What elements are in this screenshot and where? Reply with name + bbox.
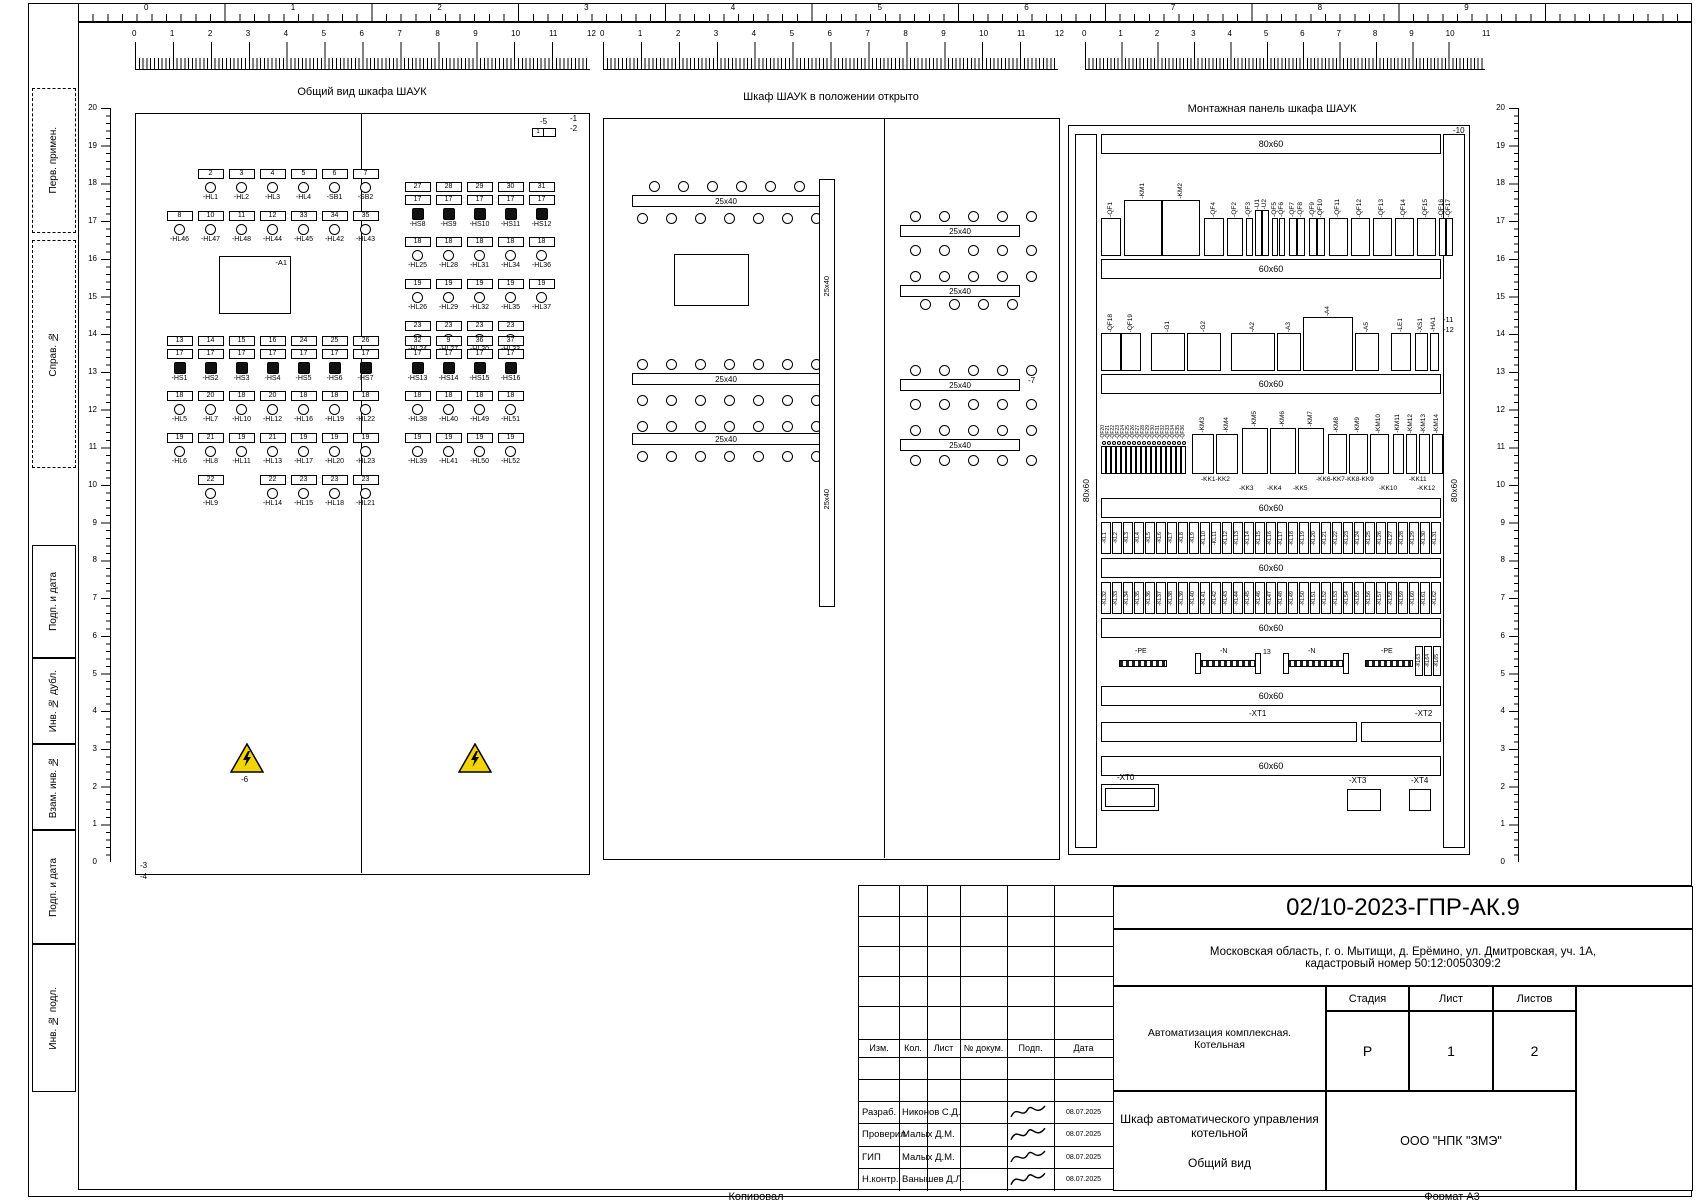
title-block: 02/10-2023-ГПР-АК.9 Московская область, … xyxy=(858,885,1692,1190)
ref-box: 27 xyxy=(405,182,431,192)
ref-slot: 16 xyxy=(257,336,288,349)
component-qf13: -QF13 xyxy=(1373,199,1392,256)
button-icon xyxy=(298,362,310,374)
duct-size-label: 80x60 xyxy=(1450,479,1459,502)
component-body xyxy=(1181,446,1186,474)
sign-date: 08.07.2025 xyxy=(1054,1168,1113,1191)
ref-box: 19 xyxy=(353,433,379,443)
component-label: -XS1 xyxy=(1418,318,1425,332)
component-label: -QF4 xyxy=(1211,202,1218,217)
indicator-lamp: -SB2 xyxy=(350,182,381,211)
indicator-lamp: -HL21 xyxy=(350,488,381,517)
grid-line xyxy=(859,916,1113,917)
mounting-hole xyxy=(978,299,989,310)
terminal: -KL41 xyxy=(1200,582,1210,614)
terminal-label: -KL34 xyxy=(1125,591,1131,606)
terminal-label: -KL24 xyxy=(1356,531,1362,546)
table-header: Лист xyxy=(927,1039,960,1057)
relay-label: -KK6-KK7-KK8-KK9 xyxy=(1316,476,1374,483)
component-qf10: -QF10 xyxy=(1317,199,1325,256)
lamp-icon xyxy=(505,404,516,415)
ref-slot: 17 xyxy=(195,349,226,362)
margin-label-box: Подп. и дата xyxy=(32,830,76,944)
terminal: -KL65 xyxy=(1433,646,1441,676)
drawing-name-cell: Шкаф автоматического управления котельно… xyxy=(1113,1091,1326,1191)
pe-busbar xyxy=(1365,660,1413,667)
mounting-hole xyxy=(678,181,689,192)
terminal-label: -KL35 xyxy=(1136,591,1142,606)
terminal: -KL35 xyxy=(1134,582,1144,614)
push-button: -HS1 xyxy=(164,362,195,391)
lamp-label: -HL20 xyxy=(325,457,344,466)
terminal-screw-icon xyxy=(1177,441,1181,445)
ref-box: 17 xyxy=(467,349,493,359)
terminal-label: -KL60 xyxy=(1411,591,1417,606)
n-busbar xyxy=(1287,660,1345,667)
indicator-lamp: -HL13 xyxy=(257,446,288,475)
ruler-number: 9 xyxy=(941,30,945,38)
component-body xyxy=(1297,218,1305,256)
terminal: -KL25 xyxy=(1365,522,1375,554)
ref-slot: 28 xyxy=(433,182,464,195)
ruler-number: 16 xyxy=(1496,255,1505,263)
empty-slot xyxy=(526,321,557,334)
terminal: -KL49 xyxy=(1288,582,1298,614)
ref-box: 18 xyxy=(405,237,431,247)
ref-box: 17 xyxy=(229,349,255,359)
mounting-hole xyxy=(910,271,921,282)
ref-slot: 23 xyxy=(350,475,381,488)
lamp-icon xyxy=(443,404,454,415)
ruler-number: 12 xyxy=(88,406,97,414)
terminal: -KL51 xyxy=(1310,582,1320,614)
cable-duct: 25x40 xyxy=(900,285,1020,297)
ruler-number: 11 xyxy=(1497,443,1505,451)
ruler-number: 4 xyxy=(1501,707,1505,715)
ref-box: 23 xyxy=(436,321,462,331)
lamp-column: 6-SB134-HL42 xyxy=(319,169,350,253)
lamp-icon xyxy=(298,488,309,499)
left-vertical-ruler: 20191817161514131211109876543210 xyxy=(84,108,111,862)
mounting-hole xyxy=(724,395,735,406)
mounting-hole xyxy=(782,451,793,462)
lamp-label: -SB1 xyxy=(327,193,343,202)
terminal: -KL61 xyxy=(1420,582,1430,614)
ref-box: 11 xyxy=(229,211,255,221)
button-label: -HS11 xyxy=(501,220,520,229)
component-km11: -KM11 xyxy=(1393,414,1404,474)
terminal-label: -KL37 xyxy=(1158,591,1164,606)
mounting-hole xyxy=(910,399,921,410)
terminal: -KL33 xyxy=(1112,582,1122,614)
ruler-number: 0 xyxy=(1501,858,1505,866)
ref-slot: 23 xyxy=(464,321,495,334)
terminal-label: -KL57 xyxy=(1378,591,1384,606)
component-label: -KM11 xyxy=(1395,414,1402,433)
terminal-label: -KL62 xyxy=(1433,591,1439,606)
ref-slot: 18 xyxy=(464,237,495,250)
signer-role: Проверил xyxy=(859,1123,899,1146)
lamp-label: -HL46 xyxy=(170,235,189,244)
ref-slot: 9 xyxy=(433,336,464,349)
terminal-label: -KL48 xyxy=(1279,591,1285,606)
terminal-label: -KL52 xyxy=(1323,591,1329,606)
busbar-label: -PE xyxy=(1381,648,1393,656)
ruler-number: 8 xyxy=(435,30,439,38)
ref-box: 17 xyxy=(529,195,555,205)
component-body xyxy=(1309,218,1317,256)
lamp-label: -HL38 xyxy=(408,415,427,424)
button-icon xyxy=(412,208,424,220)
terminal-label: -KL36 xyxy=(1147,591,1153,606)
ref-slot: 17 xyxy=(433,349,464,362)
ref-slot: 17 xyxy=(288,349,319,362)
component-km5: -KM5 xyxy=(1242,411,1268,474)
callout-13: 13 xyxy=(1263,649,1271,657)
component-body xyxy=(1227,218,1243,256)
lamp-icon xyxy=(474,404,485,415)
ref-slot: 18 xyxy=(319,391,350,404)
stage-value: Р xyxy=(1326,1011,1409,1091)
empty-slot xyxy=(164,475,195,488)
ref-box: 18 xyxy=(529,237,555,247)
button-label: -HS3 xyxy=(234,374,250,383)
lamp-icon xyxy=(412,292,423,303)
ref-slot: 36 xyxy=(464,336,495,349)
terminal-label: -KL12 xyxy=(1224,531,1230,546)
terminal-label: -KL64 xyxy=(1426,654,1431,667)
mounting-hole xyxy=(753,359,764,370)
ruler-number: 2 xyxy=(208,30,212,38)
component-label: -A3 xyxy=(1286,322,1293,332)
cable-duct: 60x60 xyxy=(1101,558,1441,578)
right-vertical-ruler: 20191817161514131211109876543210 xyxy=(1492,108,1519,862)
indicator-lamp: -HL10 xyxy=(226,404,257,433)
xt1-label: -XT1 xyxy=(1249,710,1266,719)
lamp-icon xyxy=(236,182,247,193)
ref-box: 17 xyxy=(260,349,286,359)
ruler-number: 2 xyxy=(1155,30,1159,38)
component-body xyxy=(1204,218,1224,256)
terminal: -KL39 xyxy=(1178,582,1188,614)
lamp-label: -HL3 xyxy=(265,193,280,202)
ruler-ticks xyxy=(1085,42,1485,70)
ruler-number: 6 xyxy=(1300,30,1304,38)
ruler-number: 1 xyxy=(1118,30,1122,38)
terminal-label: -KL28 xyxy=(1400,531,1406,546)
ref-slot: 23 xyxy=(319,475,350,488)
ref-box: 18 xyxy=(322,391,348,401)
lamp-icon xyxy=(236,446,247,457)
terminal-block-xt4 xyxy=(1409,789,1431,811)
terminal-label: -KL21 xyxy=(1323,531,1329,546)
ref-box: 10 xyxy=(198,211,224,221)
ruler-number: 6 xyxy=(93,632,97,640)
component-label: -KM5 xyxy=(1252,411,1259,427)
ruler-number: 12 xyxy=(587,30,596,38)
component-body xyxy=(1289,218,1297,256)
button-label: -HS7 xyxy=(358,374,374,383)
indicator-lamp: -HL47 xyxy=(195,224,226,253)
terminal: -KL24 xyxy=(1354,522,1364,554)
terminal-label: -KL39 xyxy=(1180,591,1186,606)
component-km9: -KM9 xyxy=(1349,417,1368,474)
mounting-hole xyxy=(666,359,677,370)
lamp-icon xyxy=(505,250,516,261)
margin-label: Инв. № дубл. xyxy=(49,670,59,732)
ruler-number: 5 xyxy=(790,30,794,38)
ref-slot: 19 xyxy=(350,433,381,446)
ruler-number: 11 xyxy=(549,30,557,38)
mounting-hole xyxy=(939,399,950,410)
lamp-label: -HL52 xyxy=(501,457,520,466)
ruler-number: 1 xyxy=(1501,820,1505,828)
ruler-number: 8 xyxy=(903,30,907,38)
lamp-column: 3717-HS1618-HL5119-HL52 xyxy=(495,336,526,475)
lamp-icon xyxy=(236,224,247,235)
ruler-ticks xyxy=(603,42,1058,70)
table-header: Дата xyxy=(1054,1039,1113,1057)
panel-content: 80x6060x6060x6060x6060x6060x6060x6060x60… xyxy=(1101,126,1441,856)
ref-box: 35 xyxy=(353,211,379,221)
lamp-label: -HL37 xyxy=(532,303,551,312)
lamp-icon xyxy=(443,250,454,261)
component-km1: -KM1 xyxy=(1124,183,1162,256)
doc-number: 02/10-2023-ГПР-АК.9 xyxy=(1113,886,1693,929)
front-view-ruler: 0123456789101112 xyxy=(135,30,590,72)
terminal: -KL59 xyxy=(1398,582,1408,614)
mounting-panel-view: 80x6080x60-1080x6060x6060x6060x6060x6060… xyxy=(1068,125,1470,855)
ruler-number: 1 xyxy=(170,30,174,38)
mounting-hole xyxy=(782,421,793,432)
ruler-number: 15 xyxy=(88,293,97,301)
ruler-number: 16 xyxy=(88,255,97,263)
ref-slot: 7 xyxy=(350,169,381,182)
ref-slot: 15 xyxy=(226,336,257,349)
ruler-number: 3 xyxy=(93,745,97,753)
mounting-hole xyxy=(753,451,764,462)
ref-slot: 19 xyxy=(526,279,557,292)
lamp-label: -HL21 xyxy=(356,499,375,508)
component-a5: -A5 xyxy=(1355,322,1379,371)
component-label: -LE1 xyxy=(1398,318,1405,332)
terminal-label: -KL32 xyxy=(1103,591,1109,606)
component-label: -KM12 xyxy=(1408,414,1415,433)
component-body xyxy=(1373,218,1392,256)
lamp-label: -HL43 xyxy=(356,235,375,244)
mounting-hole xyxy=(724,421,735,432)
lamp-icon xyxy=(329,446,340,457)
indicator-lamp: -HL25 xyxy=(402,250,433,279)
terminal: -KL17 xyxy=(1277,522,1287,554)
lamp-label: -HL44 xyxy=(263,235,282,244)
terminal-label: -KL3 xyxy=(1125,532,1131,544)
push-button: -HS3 xyxy=(226,362,257,391)
terminal: -KL50 xyxy=(1299,582,1309,614)
ruler-number: 6 xyxy=(828,30,832,38)
component-qf11: -QF11 xyxy=(1329,199,1348,256)
indicator-lamp: -HL20 xyxy=(319,446,350,475)
ref-box: 9 xyxy=(436,336,462,346)
view-title-front: Общий вид шкафа ШАУК xyxy=(297,86,426,98)
ref-box: 17 xyxy=(322,349,348,359)
push-button: -HS12 xyxy=(526,208,557,237)
component-qf9: -QF9 xyxy=(1309,202,1317,256)
termin al-strip-kl-3: -KL63-KL64-KL65 xyxy=(1415,646,1442,676)
indicator-lamp: -HL15 xyxy=(288,488,319,517)
lamp-column: 3-HL211-HL48 xyxy=(226,169,257,253)
mounting-hole xyxy=(968,271,979,282)
lamp-icon xyxy=(298,446,309,457)
component-body xyxy=(1303,317,1353,371)
ruler-number: 7 xyxy=(1171,4,1175,12)
ruler-number: 10 xyxy=(979,30,988,38)
ref-box: 19 xyxy=(167,433,193,443)
ruler-number: 15 xyxy=(1496,293,1505,301)
indicator-lamp: -HL40 xyxy=(433,404,464,433)
ref-slot: 17 xyxy=(350,349,381,362)
indicator-lamp: -HL12 xyxy=(257,404,288,433)
mounting-hole xyxy=(949,299,960,310)
terminal-screw-icon xyxy=(1147,441,1151,445)
open-view-ruler: 0123456789101112 xyxy=(603,30,1058,72)
relay-label: -KK10 xyxy=(1379,485,1397,492)
mounting-hole xyxy=(968,425,979,436)
lamp-label: -HL22 xyxy=(356,415,375,424)
lamp-column: 2-HL110-HL47 xyxy=(195,169,226,253)
lamp-icon xyxy=(536,250,547,261)
callout-3: -3 xyxy=(140,862,147,871)
indicator-lamp: -SB1 xyxy=(319,182,350,211)
ref-box: 26 xyxy=(353,336,379,346)
ref-box: 20 xyxy=(198,391,224,401)
component-label: -QF6 xyxy=(1279,202,1286,217)
component-body xyxy=(1242,428,1268,474)
lamp-label: -HL17 xyxy=(294,457,313,466)
mounting-hole xyxy=(695,359,706,370)
grid-line xyxy=(859,1079,1113,1080)
ref-slot: 19 xyxy=(433,279,464,292)
terminal-strip-kl-2: -KL32-KL33-KL34-KL35-KL36-KL37-KL38-KL39… xyxy=(1101,582,1442,614)
ruler-number: 6 xyxy=(360,30,364,38)
ref-slot: 18 xyxy=(495,237,526,250)
terminal-screw-icon xyxy=(1127,441,1131,445)
component-label: -QF14 xyxy=(1401,199,1408,217)
busbar-clamp xyxy=(1255,653,1261,674)
terminal-label: -KL51 xyxy=(1312,591,1318,606)
ref-box: 18 xyxy=(291,391,317,401)
margin-label-box: Справ. № xyxy=(32,240,76,468)
terminal: -KL36 xyxy=(1145,582,1155,614)
ref-slot: 18 xyxy=(402,391,433,404)
margin-label: Взам. инв. № xyxy=(49,756,59,818)
mounting-hole xyxy=(1026,399,1037,410)
ref-box: 16 xyxy=(260,336,286,346)
lamp-label: -HL50 xyxy=(470,457,489,466)
terminal: -KL2 xyxy=(1112,522,1122,554)
ruler-number: 1 xyxy=(93,820,97,828)
ref-slot: 19 xyxy=(226,433,257,446)
lamp-icon xyxy=(267,224,278,235)
component-km7: -KM7 xyxy=(1298,411,1324,474)
indicator-lamp: -HL8 xyxy=(195,446,226,475)
signature xyxy=(1007,1146,1054,1168)
empty-slot xyxy=(164,169,195,182)
terminal: -KL30 xyxy=(1420,522,1430,554)
component-body xyxy=(1298,428,1324,474)
busbar-clamp xyxy=(1343,653,1349,674)
table-header: Кол. xyxy=(899,1039,927,1057)
lamp-icon xyxy=(205,182,216,193)
mounting-hole xyxy=(997,271,1008,282)
ref-box: 30 xyxy=(498,182,524,192)
cable-duct: 60x60 xyxy=(1101,618,1441,638)
push-button: -HS2 xyxy=(195,362,226,391)
ref-box: 18 xyxy=(436,237,462,247)
component-km8: -KM8 xyxy=(1328,417,1347,474)
lamp-icon xyxy=(267,488,278,499)
indicator-lamp: -HL18 xyxy=(319,488,350,517)
terminal: -KL57 xyxy=(1376,582,1386,614)
button-label: -HS9 xyxy=(441,220,457,229)
relay-label: -KK1-KK2 xyxy=(1201,476,1230,483)
sign-date: 08.07.2025 xyxy=(1054,1123,1113,1146)
ref-slot: 18 xyxy=(164,391,195,404)
lamp-column: 917-HS1418-HL4019-HL41 xyxy=(433,336,464,475)
component-km10: -KM10 xyxy=(1370,414,1389,474)
company-name: ООО "НПК "ЗМЭ" xyxy=(1326,1091,1576,1191)
view-name: Общий вид xyxy=(1188,1156,1251,1170)
lamp-label: -HL6 xyxy=(172,457,187,466)
component-label: -QF19 xyxy=(1128,314,1135,332)
ref-box: 7 xyxy=(353,169,379,179)
terminal: -KL53 xyxy=(1332,582,1342,614)
button-icon xyxy=(536,208,548,220)
lamp-icon xyxy=(443,446,454,457)
component-g1: -G1 xyxy=(1151,321,1185,371)
terminal: -KL11 xyxy=(1211,522,1221,554)
component-body xyxy=(1101,333,1121,371)
cable-duct: 25x40 xyxy=(632,433,820,445)
component-km2: -KM2 xyxy=(1162,183,1200,256)
terminal-label: -KL53 xyxy=(1334,591,1340,606)
ruler-number: 5 xyxy=(1264,30,1268,38)
lamp-icon xyxy=(474,250,485,261)
margin-label-box: Инв. № дубл. xyxy=(32,658,76,744)
ref-slot: 19 xyxy=(433,433,464,446)
terminal-screw-icon xyxy=(1152,441,1156,445)
ref-box: 5 xyxy=(291,169,317,179)
lamp-icon xyxy=(329,182,340,193)
ruler-number: 9 xyxy=(473,30,477,38)
ref-box: 18 xyxy=(498,391,524,401)
ruler-major-ticks xyxy=(78,3,1692,22)
lamp-icon xyxy=(329,404,340,415)
push-button: -HS14 xyxy=(433,362,464,391)
ref-slot: 8 xyxy=(164,211,195,224)
component-qf4: -QF4 xyxy=(1204,202,1224,256)
mounting-hole xyxy=(910,245,921,256)
component-qf2: -QF2 xyxy=(1227,202,1243,256)
component-label: -U2 xyxy=(1262,199,1269,209)
ref-box: 29 xyxy=(467,182,493,192)
ref-slot: 18 xyxy=(226,391,257,404)
ruler-number: 6 xyxy=(1024,4,1028,12)
terminal-label: -KL13 xyxy=(1235,531,1241,546)
terminal-label: -KL22 xyxy=(1334,531,1340,546)
terminal-block-xt2 xyxy=(1361,722,1441,742)
ref-box: 18 xyxy=(498,237,524,247)
